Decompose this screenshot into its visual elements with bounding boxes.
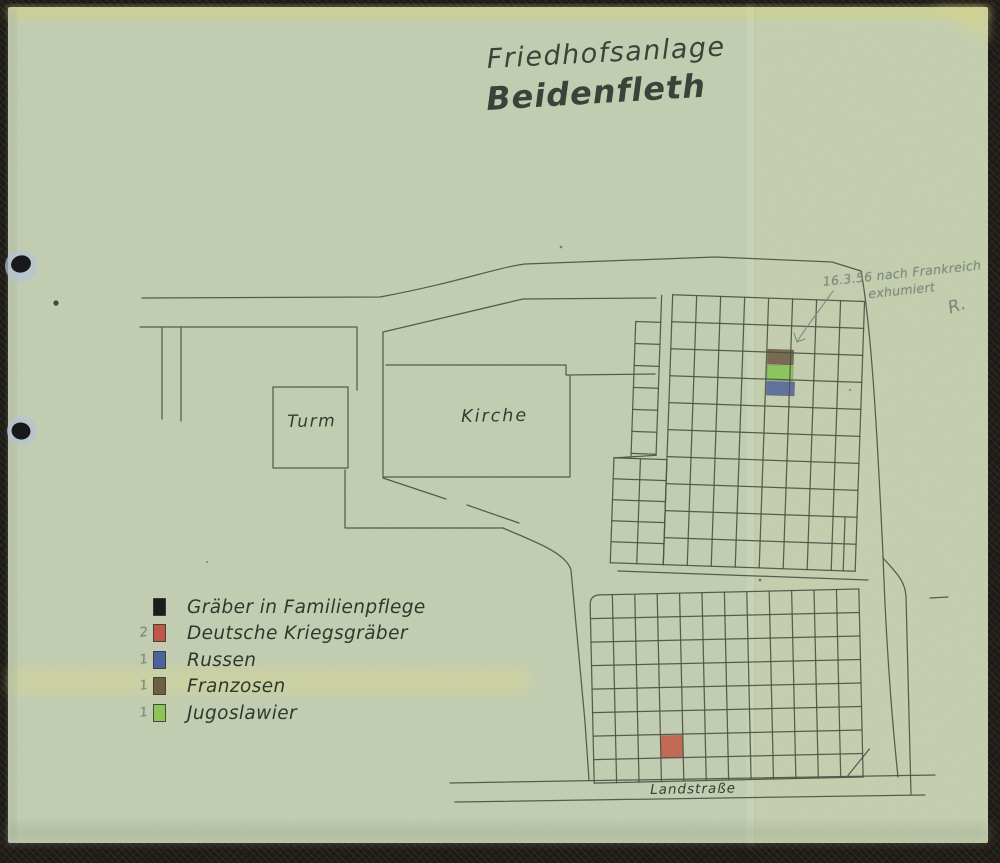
legend-label: Franzosen [187,676,286,697]
grid-line [632,431,657,432]
legend-count [130,606,148,609]
grid-line [633,409,658,410]
grid-line [633,387,658,388]
punch-hole-top [5,250,37,282]
right-fold-tint [752,7,988,843]
legend-count: 1 [129,651,149,668]
legend-count: 1 [129,704,149,721]
legend-swatch-brown [153,677,167,696]
church-label: Kirche [461,406,528,427]
legend-label: Gräber in Familienpflege [187,597,426,618]
legend-swatch-black [153,598,167,617]
legend-row-franzosen: 1 Franzosen [130,677,426,697]
german-plot-cell [661,735,683,757]
legend: Gräber in Familienpflege 2 Deutsche Krie… [130,597,426,730]
swatch-rect [154,598,166,615]
fold-crease [748,7,753,843]
grid-line [634,365,659,366]
legend-row-deutsche: 2 Deutsche Kriegsgräber [130,624,426,644]
tower-label: Turm [287,411,336,432]
grid-line [631,453,656,454]
grid-line [635,343,660,344]
legend-swatch-blue [153,651,167,670]
punch-hole-bottom [7,416,37,446]
cemetery-plan-drawing [0,0,1000,863]
legend-label: Deutsche Kriegsgräber [187,623,408,644]
legend-label: Jugoslawier [187,703,297,724]
legend-count: 2 [129,625,149,642]
swatch-rect [154,625,166,642]
legend-row-jugoslawier: 1 Jugoslawier [130,703,426,723]
legend-count: 1 [129,678,149,695]
legend-swatch-green [153,704,167,723]
legend-row-familienpflege: Gräber in Familienpflege [130,597,426,617]
swatch-rect [154,678,166,695]
legend-label: Russen [187,650,256,671]
legend-swatch-red [153,624,167,643]
bottom-edge-shadow [8,824,988,843]
swatch-rect [154,651,166,668]
road-label: Landstraße [650,781,736,798]
swatch-rect [154,704,166,721]
legend-row-russen: 1 Russen [130,650,426,670]
scan-background: Friedhofsanlage Beidenfleth Turm Kirche … [0,0,1000,863]
grid-line [636,321,661,322]
russian-plot-cell [766,381,794,396]
